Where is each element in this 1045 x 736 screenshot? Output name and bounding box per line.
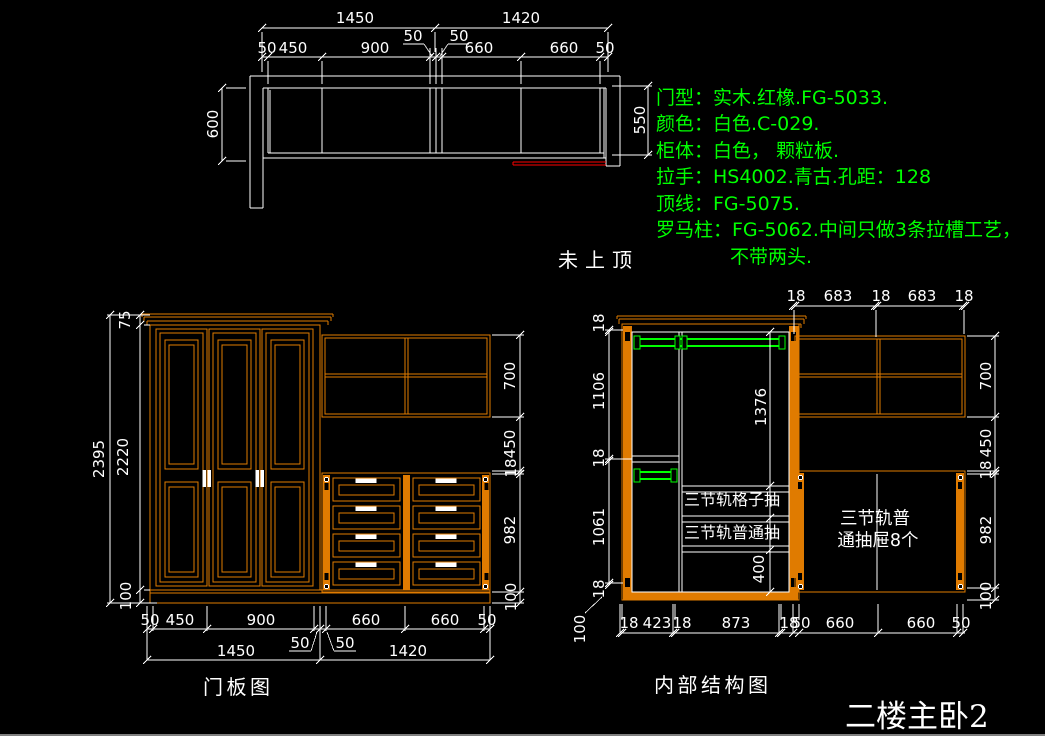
hinge-mark [798,584,802,588]
drawer-note-line: 三节轨普 [840,509,910,529]
dim-label: 100 [502,583,520,612]
drawer-front-inner [339,569,394,579]
dim-label: 2220 [114,438,132,476]
dim-label: 50 [335,634,354,652]
base-band [623,592,798,600]
dim-label: 683 [908,287,937,305]
spec-line: 柜体：白色， 颗粒板. [656,140,839,162]
drawer-handle [356,479,377,484]
rod-bracket [634,336,640,349]
drawer-stile [956,473,964,590]
dim-label: 873 [722,614,751,632]
dim-label: 100 [571,615,589,644]
hinge-mark [958,584,962,588]
dim-label: 100 [977,582,995,611]
dim-label: 50 [595,39,614,57]
dim-label: 400 [750,555,768,584]
drawer-handle [436,535,457,540]
drawer-front-inner [419,569,474,579]
cad-drawing-canvas: 1450 1420 50 50 50 450 900 660 660 50 60… [0,0,1045,736]
hinge-slot [958,482,962,489]
drawer-handle [436,507,457,512]
dim-label: 660 [826,614,855,632]
dim-label: 1420 [389,642,427,660]
hinge-mark [483,477,487,481]
hinge-mark [324,584,328,588]
upper-shelf-box [322,335,490,417]
hinge-slot [485,483,489,490]
door-upper-panel-inner [275,345,300,464]
drawer-front-inner [419,485,474,495]
dim-label: 50 [403,27,422,45]
rod-bracket [779,336,785,349]
door-upper-panel-inner [222,345,247,464]
hinge-slot [798,482,802,489]
rod-bracket [671,469,677,482]
drawer-stile [482,475,489,590]
view-title-door-panel: 门板图 [203,675,274,699]
drawer-handle [436,479,457,484]
sheet-title: 二楼主卧2 [845,699,989,735]
hinge-slot [325,483,329,490]
rod-bracket [682,336,687,349]
interior-partitions [632,332,789,592]
dim-label: 50 [791,614,810,632]
door-lower-panel [165,482,198,577]
dim-label: 660 [907,614,936,632]
view-title-internal-structure: 内部结构图 [654,673,772,697]
dim-label: 600 [204,110,222,139]
dim-label: 900 [247,611,276,629]
hinge-slot [625,578,630,587]
drawer-handle [356,535,377,540]
crown-molding [617,316,806,328]
dim-label: 450 [166,611,195,629]
dim-label: 1420 [502,9,540,27]
internal-structure-elevation: 18 683 18 683 18 18 1106 18 1061 18 100 … [571,287,999,697]
drawer-front-inner [339,541,394,551]
dim-label: 18 [502,458,520,477]
ceiling-note: 未上顶 [558,248,639,272]
drawer-row-label: 三节轨普通抽 [684,523,780,542]
dim-label: 100 [117,582,135,611]
drawer-stile [796,473,804,590]
dim-label: 1450 [217,642,255,660]
dim-label: 18 [590,313,608,332]
spec-notes: 门型：实木.红橡.FG-5033. 颜色：白色.C-029. 柜体：白色， 颗粒… [656,87,1021,268]
drawer-handle [356,507,377,512]
dim-label: 18 [672,614,691,632]
plan-view: 1450 1420 50 50 50 450 900 660 660 50 60… [204,9,652,272]
dim-label: 683 [824,287,853,305]
door-lower-panel-inner [169,487,194,572]
dim-label: 2395 [90,440,108,478]
drawer-handle [436,563,457,568]
plan-wall-and-cabinet-lines [250,76,620,208]
drawer-front-inner [339,485,394,495]
door-unit-outline [150,325,320,590]
drawer-divider [403,475,410,590]
dim-label: 18 [786,287,805,305]
dim-label: 1450 [336,9,374,27]
dim-label: 700 [501,362,519,391]
drawer-front-inner [419,541,474,551]
door-handle [261,470,265,487]
dim-label: 450 [501,430,519,459]
dim-label: 660 [465,39,494,57]
door-panel-elevation: 2395 75 2220 100 700 450 18 982 100 50 4… [90,310,524,699]
dim-label: 700 [977,362,995,391]
spec-line: 顶线：FG-5075. [656,193,800,215]
door-leaf [262,329,313,586]
spec-line: 罗马柱：FG-5062.中间只做3条拉槽工艺， [656,219,1021,241]
door-frame [266,333,309,582]
hinge-mark [798,475,802,479]
plan-red-highlight-line [513,162,606,165]
hinge-slot [325,573,329,580]
dim-label: 550 [631,106,649,135]
door-frame [213,333,256,582]
drawer-front-inner [339,513,394,523]
door-panels [156,329,313,586]
dim-label: 450 [279,39,308,57]
door-upper-panel [218,340,251,469]
dim-label: 423 [643,614,672,632]
dim-label: 982 [501,516,519,545]
spec-line: 门型：实木.红橡.FG-5033. [656,87,888,109]
dim-label: 660 [431,611,460,629]
rod-bracket [634,469,640,482]
crown-molding [142,314,333,325]
tick-marks [106,24,999,664]
dim-label: 18 [619,614,638,632]
door-handle [208,470,212,487]
hinge-mark [483,584,487,588]
door-leaf [156,329,207,586]
door-upper-panel [165,340,198,469]
dim-label: 1106 [590,372,608,410]
hinge-mark [324,477,328,481]
drawer-row-label: 三节轨格子抽 [684,490,780,509]
dim-label: 50 [257,39,276,57]
upper-shelf-box [795,336,965,417]
door-lower-panel [218,482,251,577]
spec-line: 颜色：白色.C-029. [656,113,819,135]
spec-line: 拉手：HS4002.青古.孔距：128 [656,166,931,188]
dim-label: 50 [290,634,309,652]
hinge-slot [625,332,630,341]
drawer-handle [356,563,377,568]
door-lower-panel [271,482,304,577]
door-upper-panel [271,340,304,469]
dim-label: 660 [550,39,579,57]
drawer-note-line: 通抽屉8个 [837,531,918,551]
hinge-slot [958,573,962,580]
drawer-stile [323,475,330,590]
drawer-front-inner [419,513,474,523]
cad-drawing-sheet: 1450 1420 50 50 50 450 900 660 660 50 60… [0,0,1045,736]
hinge-slot [485,573,489,580]
dim-label: 75 [116,310,134,329]
hinge-mark [958,475,962,479]
door-handle [203,470,207,487]
dim-label: 660 [352,611,381,629]
hinge-slot [798,573,802,580]
dim-label: 1061 [590,508,608,546]
dim-label: 982 [977,516,995,545]
dimension-ticks [106,24,999,664]
door-leaf [209,329,260,586]
dim-label: 18 [954,287,973,305]
rod-bracket [675,336,680,349]
door-frame [160,333,203,582]
door-lower-panel-inner [222,487,247,572]
door-lower-panel-inner [275,487,300,572]
door-upper-panel-inner [169,345,194,464]
door-handle [256,470,260,487]
spec-line: 不带两头. [730,246,812,268]
dim-label: 900 [361,39,390,57]
dim-label: 450 [977,429,995,458]
dim-label: 1376 [752,388,770,426]
